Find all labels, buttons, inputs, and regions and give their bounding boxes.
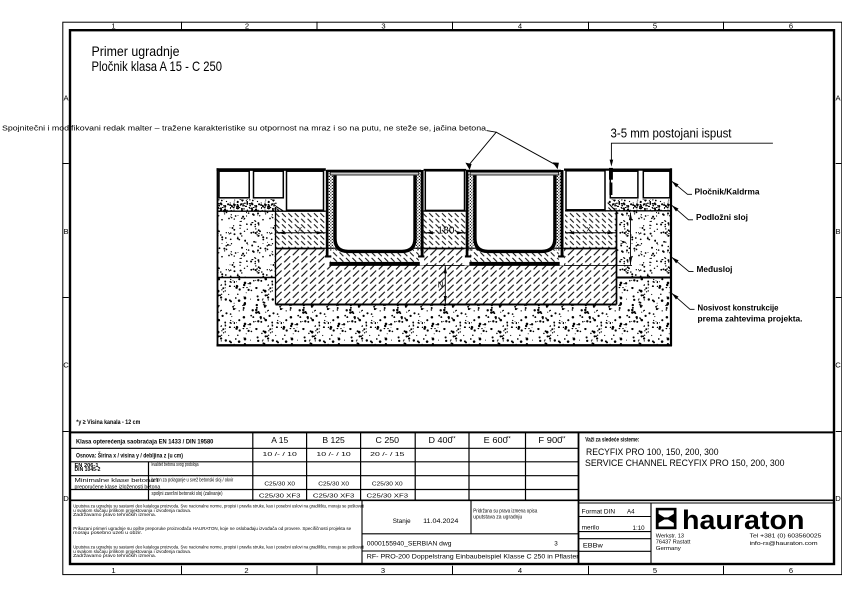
- svg-text:C 250: C 250: [376, 435, 400, 445]
- svg-text:1: 1: [111, 22, 115, 31]
- svg-text:RECYFIX PRO 100, 150, 200, 300: RECYFIX PRO 100, 150, 200, 300: [586, 447, 719, 457]
- svg-text:3: 3: [381, 566, 385, 575]
- svg-text:C25/30 X0: C25/30 X0: [318, 482, 349, 488]
- svg-text:**: **: [561, 436, 566, 442]
- svg-text:B 125: B 125: [322, 435, 345, 445]
- svg-text:10 /- / 10: 10 /- / 10: [263, 452, 298, 458]
- svg-text:Pločnik/Kaldrma: Pločnik/Kaldrma: [695, 187, 761, 196]
- svg-text:10 /- / 10: 10 /- / 10: [316, 452, 351, 458]
- svg-text:y: y: [618, 240, 627, 244]
- svg-text:180: 180: [437, 226, 455, 237]
- svg-text:3-5 mm postojani ispust: 3-5 mm postojani ispust: [611, 126, 732, 141]
- svg-text:B: B: [835, 227, 840, 236]
- svg-text:5: 5: [653, 22, 657, 31]
- svg-text:C25/30 XF3: C25/30 XF3: [313, 494, 355, 500]
- svg-text:11.04.2024: 11.04.2024: [423, 518, 459, 525]
- svg-text:Podložni sloj: Podložni sloj: [696, 213, 748, 222]
- svg-text:moraju posebno uzeti u obzir.: moraju posebno uzeti u obzir.: [73, 530, 142, 535]
- svg-text:Pločnik klasa A 15 - C 250: Pločnik klasa A 15 - C 250: [92, 58, 223, 74]
- svg-text:D: D: [835, 494, 841, 503]
- svg-text:hauraton: hauraton: [682, 505, 805, 535]
- svg-text:1:10: 1:10: [633, 525, 646, 532]
- svg-text:20 /- / 15: 20 /- / 15: [370, 452, 405, 458]
- svg-text:Germany: Germany: [656, 546, 681, 552]
- svg-text:**: **: [451, 436, 456, 442]
- svg-text:prema zahtevima projekta.: prema zahtevima projekta.: [698, 315, 803, 324]
- svg-text:Međusloj: Međusloj: [697, 265, 733, 274]
- svg-text:Werkstr. 13: Werkstr. 13: [656, 533, 684, 539]
- svg-text:6: 6: [789, 566, 793, 575]
- svg-text:3: 3: [381, 22, 385, 31]
- svg-text:x: x: [587, 224, 591, 233]
- svg-text:Primer ugradnje: Primer ugradnje: [92, 43, 180, 59]
- svg-text:**: **: [506, 436, 511, 442]
- svg-text:1: 1: [111, 566, 115, 575]
- svg-text:A4: A4: [627, 508, 635, 515]
- svg-text:2: 2: [244, 566, 248, 575]
- svg-text:D: D: [63, 494, 69, 503]
- svg-text:Zadržavamo pravo tehničkih izm: Zadržavamo pravo tehničkih izmena.: [73, 553, 156, 558]
- svg-text:Klasa opterećenja saobraćaja: Klasa opterećenja saobraćaja EN 1433 / D…: [76, 439, 214, 446]
- svg-text:Važi za sledeće sisteme:: Važi za sledeće sisteme:: [585, 437, 639, 444]
- svg-text:uputstava za ugradnju: uputstava za ugradnju: [473, 515, 522, 521]
- svg-text:Osnova: Širina x / visina y /: Osnova: Širina x / visina y / debljina z…: [76, 450, 183, 459]
- svg-text:Stanje: Stanje: [393, 518, 411, 525]
- svg-text:preporučene klase izloženosti: preporučene klase izloženosti betona: [75, 485, 162, 491]
- svg-text:info-rs@hauraton.com: info-rs@hauraton.com: [750, 541, 818, 547]
- svg-text:SERVICE CHANNEL RECYFIX PRO 15: SERVICE CHANNEL RECYFIX PRO 150, 200, 30…: [585, 458, 785, 468]
- svg-text:N: N: [438, 281, 444, 290]
- svg-text:F 900: F 900: [538, 435, 562, 445]
- svg-text:Tel +381 (0) 603560025: Tel +381 (0) 603560025: [750, 533, 822, 539]
- svg-text:6: 6: [789, 22, 793, 31]
- svg-text:2: 2: [245, 22, 249, 31]
- svg-text:kvalitet betona svog podsloja: kvalitet betona svog podsloja: [152, 462, 199, 468]
- svg-text:5: 5: [653, 566, 657, 575]
- svg-text:Pridržana su prava izmena opis: Pridržana su prava izmena opisa: [473, 508, 537, 514]
- svg-text:C: C: [835, 361, 841, 370]
- svg-text:A 15: A 15: [271, 435, 288, 445]
- svg-text:spoljni završni betonski sloj: spoljni završni betonski sloj (zalivanje…: [152, 491, 223, 497]
- svg-text:Nosivost konstrukcije: Nosivost konstrukcije: [698, 304, 780, 313]
- svg-text:0000155940_SERBIAN dwg: 0000155940_SERBIAN dwg: [367, 541, 452, 548]
- svg-text:3: 3: [554, 541, 558, 548]
- svg-text:4: 4: [518, 22, 522, 31]
- svg-text:A: A: [835, 94, 841, 103]
- svg-text:76437 Rastatt: 76437 Rastatt: [656, 540, 691, 546]
- svg-text:*y ≥ Visina kanala - 12 cm: *y ≥ Visina kanala - 12 cm: [76, 419, 140, 426]
- svg-text:C25/30 X0: C25/30 X0: [264, 482, 295, 488]
- svg-text:E 600: E 600: [484, 435, 508, 445]
- svg-text:C25/30 XF3: C25/30 XF3: [259, 494, 301, 500]
- svg-text:Spojnitečni i modifikovani red: Spojnitečni i modifikovani redak malter …: [2, 123, 487, 132]
- svg-text:beton za polaganje u svež beto: beton za polaganje u svež betonski sloj …: [152, 478, 234, 484]
- svg-text:DIN 1045-2: DIN 1045-2: [75, 467, 101, 473]
- svg-text:Format DIN: Format DIN: [582, 508, 615, 515]
- svg-text:C25/30 X0: C25/30 X0: [372, 482, 403, 488]
- svg-text:EBBw: EBBw: [583, 542, 604, 549]
- svg-text:B: B: [63, 227, 68, 236]
- svg-text:x: x: [298, 224, 302, 233]
- svg-text:4: 4: [518, 566, 522, 575]
- svg-text:C: C: [63, 361, 69, 370]
- svg-text:D 400: D 400: [429, 435, 453, 445]
- svg-text:A: A: [63, 94, 69, 103]
- svg-text:Zadržavamo pravo tehničkih izm: Zadržavamo pravo tehničkih izmena.: [73, 512, 156, 517]
- svg-text:RF- PRO-200 Doppelstrang Einba: RF- PRO-200 Doppelstrang Einbaubeispiel …: [367, 554, 579, 561]
- svg-text:merilo: merilo: [582, 524, 600, 531]
- svg-text:C25/30 XF3: C25/30 XF3: [367, 494, 409, 500]
- svg-text:Minimalne klase betona i: Minimalne klase betona i: [75, 478, 159, 484]
